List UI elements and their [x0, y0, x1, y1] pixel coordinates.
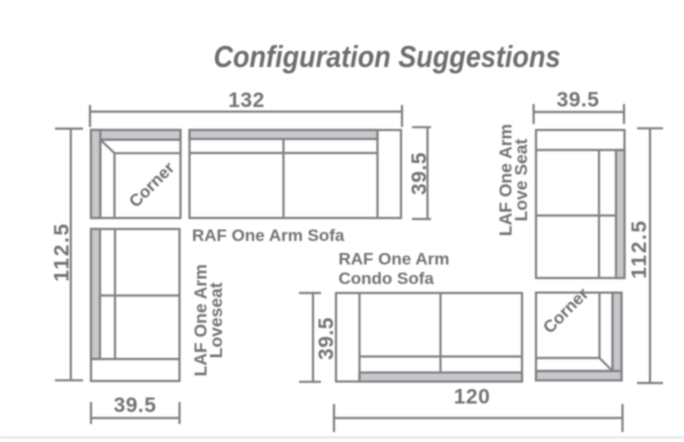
svg-text:Configuration Suggestions: Configuration Suggestions — [214, 39, 561, 74]
svg-text:39.5: 39.5 — [315, 317, 338, 360]
svg-text:132: 132 — [228, 89, 265, 112]
svg-text:Condo Sofa: Condo Sofa — [339, 269, 435, 288]
svg-text:39.5: 39.5 — [408, 152, 431, 195]
svg-text:112.5: 112.5 — [51, 222, 74, 281]
svg-text:39.5: 39.5 — [114, 394, 157, 417]
svg-text:39.5: 39.5 — [557, 89, 600, 112]
svg-text:112.5: 112.5 — [628, 219, 651, 278]
svg-text:120: 120 — [454, 386, 491, 409]
svg-text:RAF One Arm Sofa: RAF One Arm Sofa — [192, 226, 345, 245]
svg-text:RAF One Arm: RAF One Arm — [339, 250, 450, 269]
svg-text:LAF One ArmLove Seat: LAF One ArmLove Seat — [496, 124, 532, 236]
svg-text:LAF One ArmLoveseat: LAF One ArmLoveseat — [191, 264, 227, 376]
